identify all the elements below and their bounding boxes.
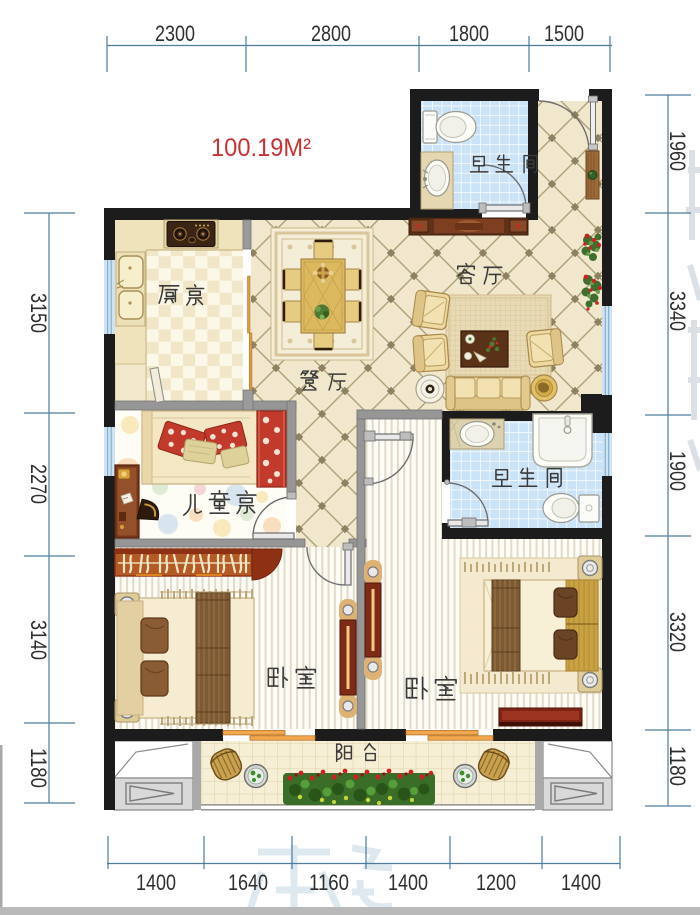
- svg-text:2800: 2800: [311, 21, 351, 46]
- svg-text:2300: 2300: [155, 21, 195, 46]
- svg-text:1180: 1180: [26, 748, 51, 788]
- svg-text:1400: 1400: [136, 870, 176, 895]
- svg-text:1800: 1800: [449, 21, 489, 46]
- svg-text:1160: 1160: [309, 870, 349, 895]
- svg-text:1640: 1640: [228, 870, 268, 895]
- svg-text:3140: 3140: [26, 620, 51, 660]
- svg-text:2270: 2270: [26, 464, 51, 504]
- svg-text:1180: 1180: [665, 746, 690, 786]
- svg-text:1400: 1400: [561, 870, 601, 895]
- svg-text:3320: 3320: [665, 612, 690, 652]
- svg-text:1200: 1200: [476, 870, 516, 895]
- svg-text:3340: 3340: [665, 291, 690, 331]
- svg-text:1900: 1900: [665, 451, 690, 491]
- svg-text:1500: 1500: [544, 21, 584, 46]
- svg-text:1400: 1400: [388, 870, 428, 895]
- svg-text:100.19M²: 100.19M²: [211, 134, 311, 162]
- svg-text:3150: 3150: [26, 293, 51, 333]
- svg-text:1960: 1960: [665, 131, 690, 171]
